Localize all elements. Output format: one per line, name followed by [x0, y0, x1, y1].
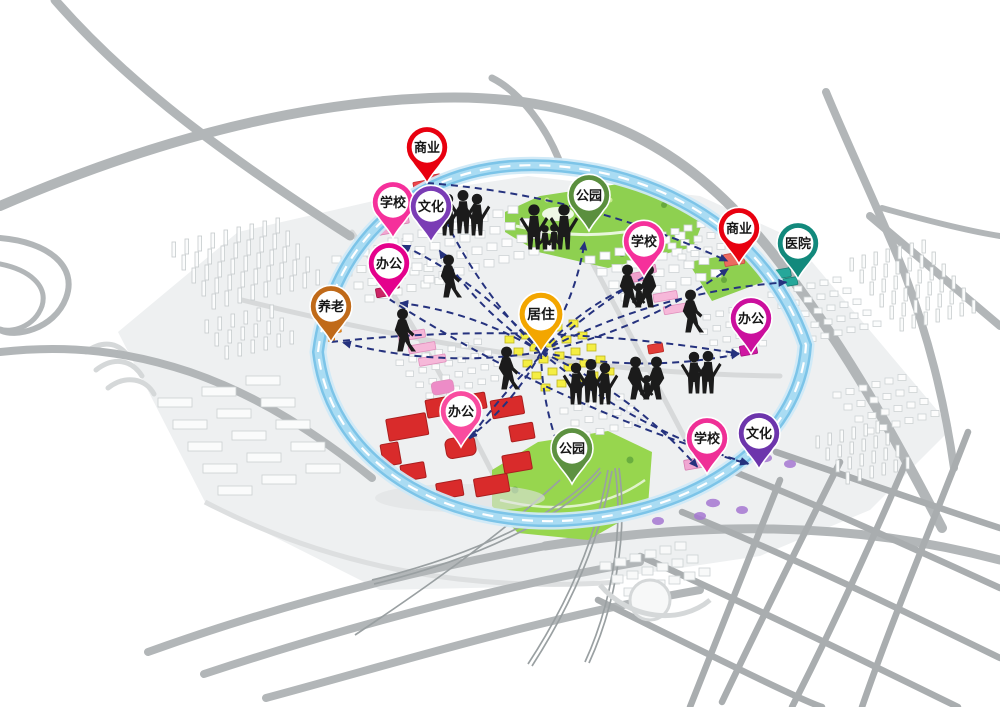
- pin-label: 办公: [376, 256, 402, 272]
- pin-label: 文化: [746, 426, 772, 442]
- pin-label: 商业: [726, 221, 752, 237]
- pin-label: 养老: [317, 299, 344, 315]
- pin-label: 学校: [380, 195, 407, 211]
- pin-label: 办公: [448, 404, 474, 420]
- pin-label: 公园: [576, 189, 602, 204]
- pin-label: 居住: [527, 306, 555, 323]
- city-planning-diagram: 商业学校文化办公养老公园学校商业医院办公办公公园学校文化居住: [0, 0, 1000, 707]
- pin-label: 文化: [418, 199, 444, 215]
- pin-label: 医院: [785, 236, 811, 252]
- pin-label: 公园: [559, 442, 585, 457]
- pin-label: 办公: [738, 311, 764, 327]
- pin-label: 学校: [631, 234, 658, 250]
- mall-south: [600, 580, 710, 620]
- pin-label: 学校: [694, 431, 721, 447]
- pin-label: 商业: [414, 140, 440, 156]
